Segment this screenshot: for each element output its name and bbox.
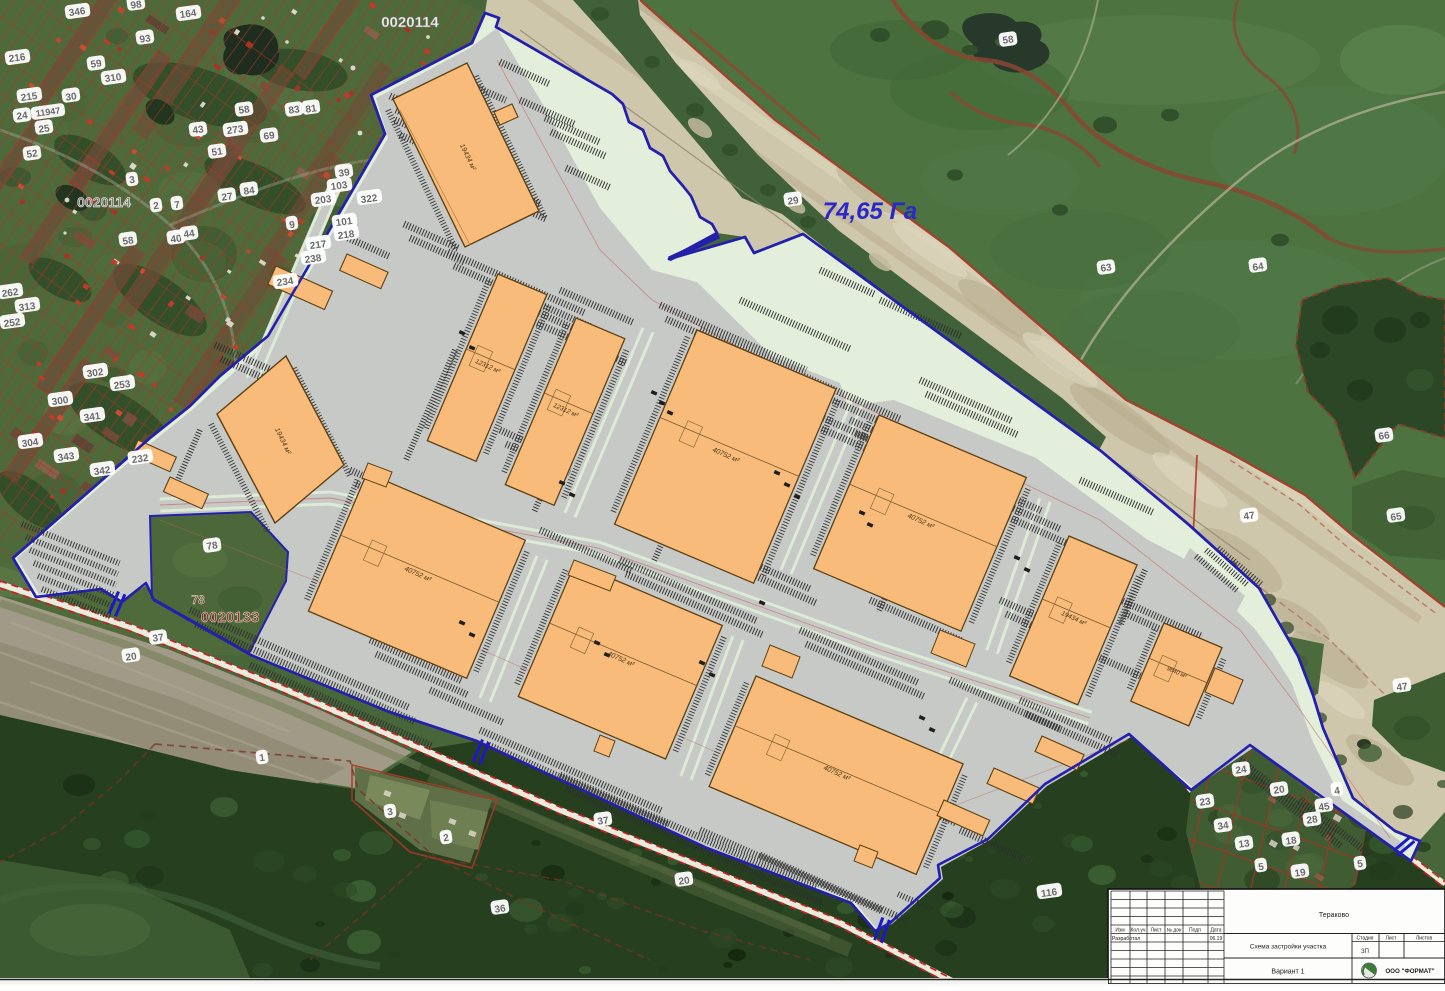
svg-text:19: 19 xyxy=(1294,867,1307,880)
svg-text:Тераково: Тераково xyxy=(1319,912,1349,919)
svg-text:98: 98 xyxy=(130,0,143,12)
svg-text:37: 37 xyxy=(597,815,610,828)
svg-text:58: 58 xyxy=(122,235,135,248)
svg-text:81: 81 xyxy=(305,103,318,116)
svg-text:24: 24 xyxy=(16,110,29,123)
svg-text:20: 20 xyxy=(1273,784,1286,797)
svg-text:52: 52 xyxy=(26,148,39,161)
svg-text:34: 34 xyxy=(1217,820,1230,833)
svg-text:28: 28 xyxy=(1306,814,1319,827)
svg-text:Стадия: Стадия xyxy=(1356,936,1373,942)
svg-text:Схема застройки участка: Схема застройки участка xyxy=(1250,943,1327,951)
svg-text:20: 20 xyxy=(678,875,691,888)
svg-text:29: 29 xyxy=(787,195,800,208)
svg-text:93: 93 xyxy=(139,33,152,46)
svg-text:Разработал: Разработал xyxy=(1112,936,1140,942)
svg-text:58: 58 xyxy=(1002,34,1015,47)
svg-text:13: 13 xyxy=(1238,838,1251,851)
svg-text:Лист: Лист xyxy=(1386,936,1398,942)
svg-text:Лист: Лист xyxy=(1151,928,1163,934)
svg-text:74,65 Га: 74,65 Га xyxy=(823,198,918,225)
svg-text:30: 30 xyxy=(65,91,78,104)
svg-text:Кол.уч: Кол.уч xyxy=(1131,928,1146,934)
svg-text:44: 44 xyxy=(183,228,196,241)
svg-text:37: 37 xyxy=(152,632,165,645)
svg-text:18: 18 xyxy=(1285,835,1298,848)
svg-text:64: 64 xyxy=(1252,261,1265,274)
svg-text:24: 24 xyxy=(1235,764,1248,777)
svg-text:63: 63 xyxy=(1100,262,1113,275)
svg-text:06.19: 06.19 xyxy=(1210,936,1223,942)
svg-text:47: 47 xyxy=(1243,510,1256,523)
svg-text:84: 84 xyxy=(243,185,256,198)
svg-text:45: 45 xyxy=(1318,801,1331,814)
svg-text:№ док: № док xyxy=(1167,928,1182,934)
svg-text:ЗП: ЗП xyxy=(1361,949,1369,955)
svg-text:66: 66 xyxy=(1378,430,1391,443)
svg-text:Листов: Листов xyxy=(1416,936,1433,942)
svg-text:65: 65 xyxy=(1390,511,1403,524)
svg-text:59: 59 xyxy=(90,58,103,71)
svg-text:36: 36 xyxy=(494,903,507,916)
svg-text:0020114: 0020114 xyxy=(77,194,131,210)
svg-text:43: 43 xyxy=(192,124,205,137)
svg-text:83: 83 xyxy=(288,104,301,117)
svg-text:78: 78 xyxy=(206,540,219,553)
svg-text:116: 116 xyxy=(1040,887,1058,900)
svg-text:Изм: Изм xyxy=(1115,928,1125,934)
svg-text:23: 23 xyxy=(1199,796,1212,809)
svg-text:51: 51 xyxy=(211,146,224,159)
svg-text:25: 25 xyxy=(38,123,51,136)
svg-text:Вариант 1: Вариант 1 xyxy=(1271,969,1304,976)
svg-text:0020114: 0020114 xyxy=(381,14,439,31)
svg-text:ООО "ФОРМАТ": ООО "ФОРМАТ" xyxy=(1385,968,1434,975)
svg-text:47: 47 xyxy=(1396,681,1409,694)
svg-text:Дата: Дата xyxy=(1210,928,1221,934)
svg-text:69: 69 xyxy=(263,130,276,143)
svg-text:0020133: 0020133 xyxy=(201,609,259,626)
svg-text:Подп: Подп xyxy=(1189,928,1201,934)
svg-text:27: 27 xyxy=(221,191,234,204)
svg-text:78: 78 xyxy=(191,593,205,607)
svg-text:58: 58 xyxy=(238,104,251,117)
svg-text:20: 20 xyxy=(125,651,138,664)
